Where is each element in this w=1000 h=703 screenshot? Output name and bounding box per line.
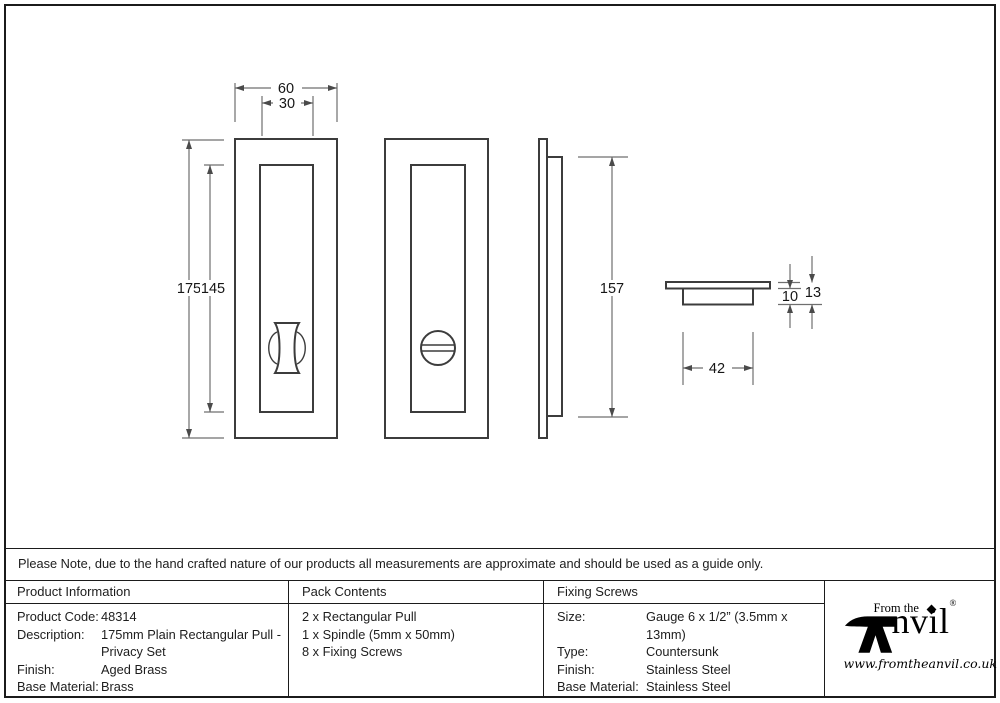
dim-outer-height: 175 (177, 281, 201, 297)
coin-slot-icon (421, 331, 455, 365)
brand-cell: From the nvil ® www.fromtheanvil.co.uk (824, 581, 996, 698)
table-row: Description: 175mm Plain Rectangular Pul… (17, 626, 288, 644)
anvil-icon (844, 611, 898, 655)
product-information-column: Product Information Product Code: 48314 … (4, 581, 288, 698)
table-row: Privacy Set (17, 643, 288, 661)
pack-contents-header: Pack Contents (289, 581, 543, 604)
front-view-privacy (235, 139, 337, 438)
spec-sheet: 60 30 175 145 (0, 0, 1000, 703)
section-view (666, 282, 770, 305)
dim-plate-height: 157 (600, 281, 624, 297)
front-view-coin-release (385, 139, 488, 438)
table-row: Finish: Aged Brass (17, 661, 288, 679)
measurement-note: Please Note, due to the hand crafted nat… (4, 548, 996, 579)
table-row: Product Code: 48314 (17, 608, 288, 626)
dimension-annotations: 60 30 175 145 (175, 80, 822, 438)
table-row: Type: Countersunk (557, 643, 824, 661)
dim-back-depth: 10 (782, 289, 798, 305)
dim-recess-width: 30 (279, 96, 295, 112)
dim-back-width: 42 (709, 361, 725, 377)
product-information-header: Product Information (4, 581, 288, 604)
brand-text: nvil (892, 603, 950, 639)
list-item: 2 x Rectangular Pull (302, 608, 543, 626)
dim-recess-height: 145 (201, 281, 225, 297)
technical-drawing: 60 30 175 145 (0, 0, 1000, 548)
spec-table: Product Information Product Code: 48314 … (4, 580, 996, 698)
table-row: Base Material: Stainless Steel (557, 678, 824, 696)
logo-url: www.fromtheanvil.co.uk (844, 656, 978, 671)
fixing-screws-header: Fixing Screws (544, 581, 824, 604)
registered-mark: ® (950, 598, 957, 608)
pack-contents-column: Pack Contents 2 x Rectangular Pull 1 x S… (288, 581, 543, 698)
table-row: Base Material: Brass (17, 678, 288, 696)
dim-total-depth: 13 (805, 285, 821, 301)
fixing-screws-column: Fixing Screws Size: Gauge 6 x 1/2” (3.5m… (543, 581, 824, 698)
table-row: Size: Gauge 6 x 1/2” (3.5mm x 13mm) (557, 608, 824, 643)
anvil-logo: From the nvil ® www.fromtheanvil.co.uk (844, 601, 978, 673)
list-item: 8 x Fixing Screws (302, 643, 543, 661)
table-row: Finish: Stainless Steel (557, 661, 824, 679)
side-view (539, 139, 562, 438)
thumbturn-icon (275, 323, 299, 373)
list-item: 1 x Spindle (5mm x 50mm) (302, 626, 543, 644)
dim-outer-width: 60 (278, 81, 294, 97)
